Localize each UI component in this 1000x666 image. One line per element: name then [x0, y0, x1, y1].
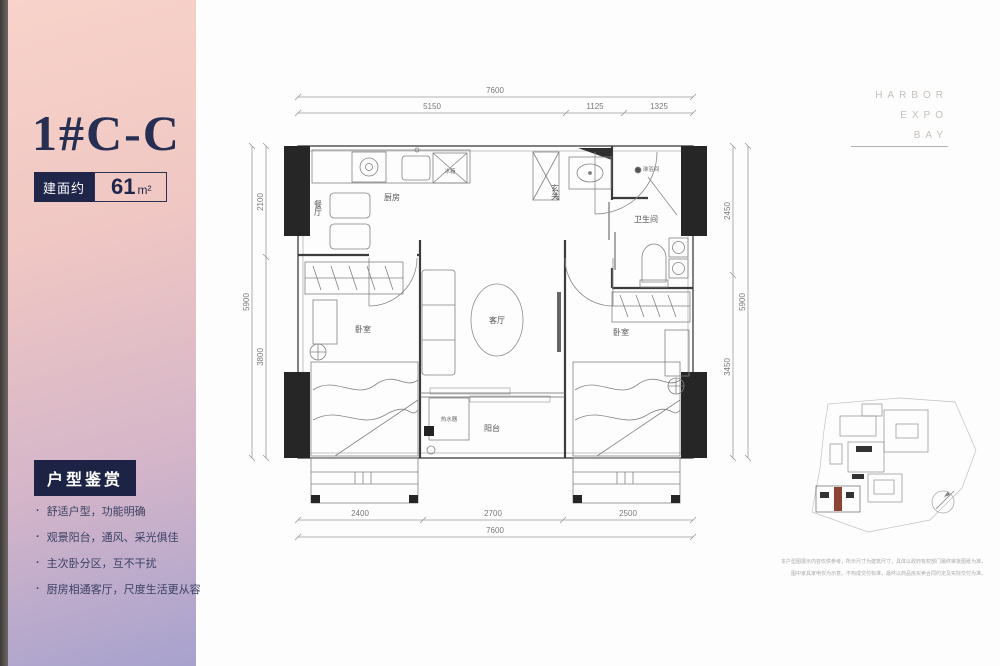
- dim-bottom-seg1: 2400: [351, 509, 369, 518]
- site-plan: [812, 398, 976, 532]
- entry-door: [595, 152, 657, 214]
- desk-left: [313, 300, 337, 344]
- sofa: [422, 270, 455, 375]
- desk-right: [665, 330, 689, 376]
- room-label-balcony: 阳台: [484, 423, 500, 433]
- tv-panel: [557, 292, 561, 352]
- dim-right-seg1: 2450: [723, 202, 732, 220]
- dining-seat: [330, 193, 370, 218]
- dim-top-seg3: 1325: [650, 102, 668, 111]
- disclaimer-line2: 图中家具家电仅为示意，不构成交付标准，最终以商品房买卖合同约定及实际交付为准。: [781, 568, 986, 580]
- dim-right-seg2: 3450: [723, 358, 732, 376]
- bedroom-right-door: [565, 258, 613, 306]
- room-label-shower: 淋浴间: [643, 165, 660, 173]
- stove: [352, 152, 386, 182]
- room-label-bedroom-right: 卧室: [613, 327, 629, 337]
- doors: [369, 152, 677, 306]
- room-label-bedroom-left: 卧室: [355, 324, 371, 334]
- toilet: [642, 244, 666, 282]
- dim-top-seg2: 1125: [586, 102, 604, 111]
- room-label-bathroom: 卫生间: [634, 214, 658, 224]
- kitchen-counter: [312, 150, 470, 183]
- dim-left-seg2: 3800: [256, 348, 265, 366]
- dim-bottom-seg3: 2500: [619, 509, 637, 518]
- disclaimer-line1: 本户型图展示内容仅供参考，所示尺寸为建筑尺寸，具体以政府有权部门最终审批图纸为准…: [781, 556, 986, 568]
- shower-head: [635, 167, 641, 173]
- dim-right-total: 5900: [738, 293, 747, 311]
- column: [284, 146, 310, 236]
- dim-left-seg1: 2100: [256, 193, 265, 211]
- floorplan-board: { "sidebar": { "title": "1#C-C", "area_l…: [0, 0, 1000, 666]
- dryer: [669, 259, 688, 278]
- bay-window-left: [311, 458, 418, 503]
- column: [681, 146, 707, 236]
- dim-top-seg1: 5150: [423, 102, 441, 111]
- dimension-labels: 7600 5150 1125 1325 2400 2700 2500 7600 …: [242, 86, 747, 535]
- dim-left-total: 5900: [242, 293, 251, 311]
- room-label-living: 客厅: [489, 315, 505, 325]
- compass-icon: [932, 491, 954, 513]
- dim-bottom-total: 7600: [486, 526, 504, 535]
- dining-seat: [330, 224, 370, 249]
- label-water-heater: 热水器: [441, 415, 458, 423]
- room-label-kitchen: 厨房: [384, 192, 400, 202]
- room-label-entry: 玄关: [551, 183, 560, 201]
- column: [681, 372, 707, 458]
- label-fridge: 冰箱: [444, 167, 456, 175]
- dim-bottom-seg2: 2700: [484, 509, 502, 518]
- shower-door: [648, 177, 677, 215]
- disclaimer-note: 本户型图展示内容仅供参考，所示尺寸为建筑尺寸，具体以政府有权部门最终审批图纸为准…: [781, 556, 986, 580]
- dim-top-total: 7600: [486, 86, 504, 95]
- room-label-dining: 餐厅: [314, 200, 323, 216]
- bedroom-left-door: [369, 258, 417, 306]
- wardrobe-right: [612, 292, 690, 322]
- column: [284, 372, 310, 458]
- washer: [669, 238, 688, 257]
- sink: [402, 156, 430, 180]
- bay-window-right: [573, 458, 680, 503]
- highlighted-building: [834, 487, 842, 511]
